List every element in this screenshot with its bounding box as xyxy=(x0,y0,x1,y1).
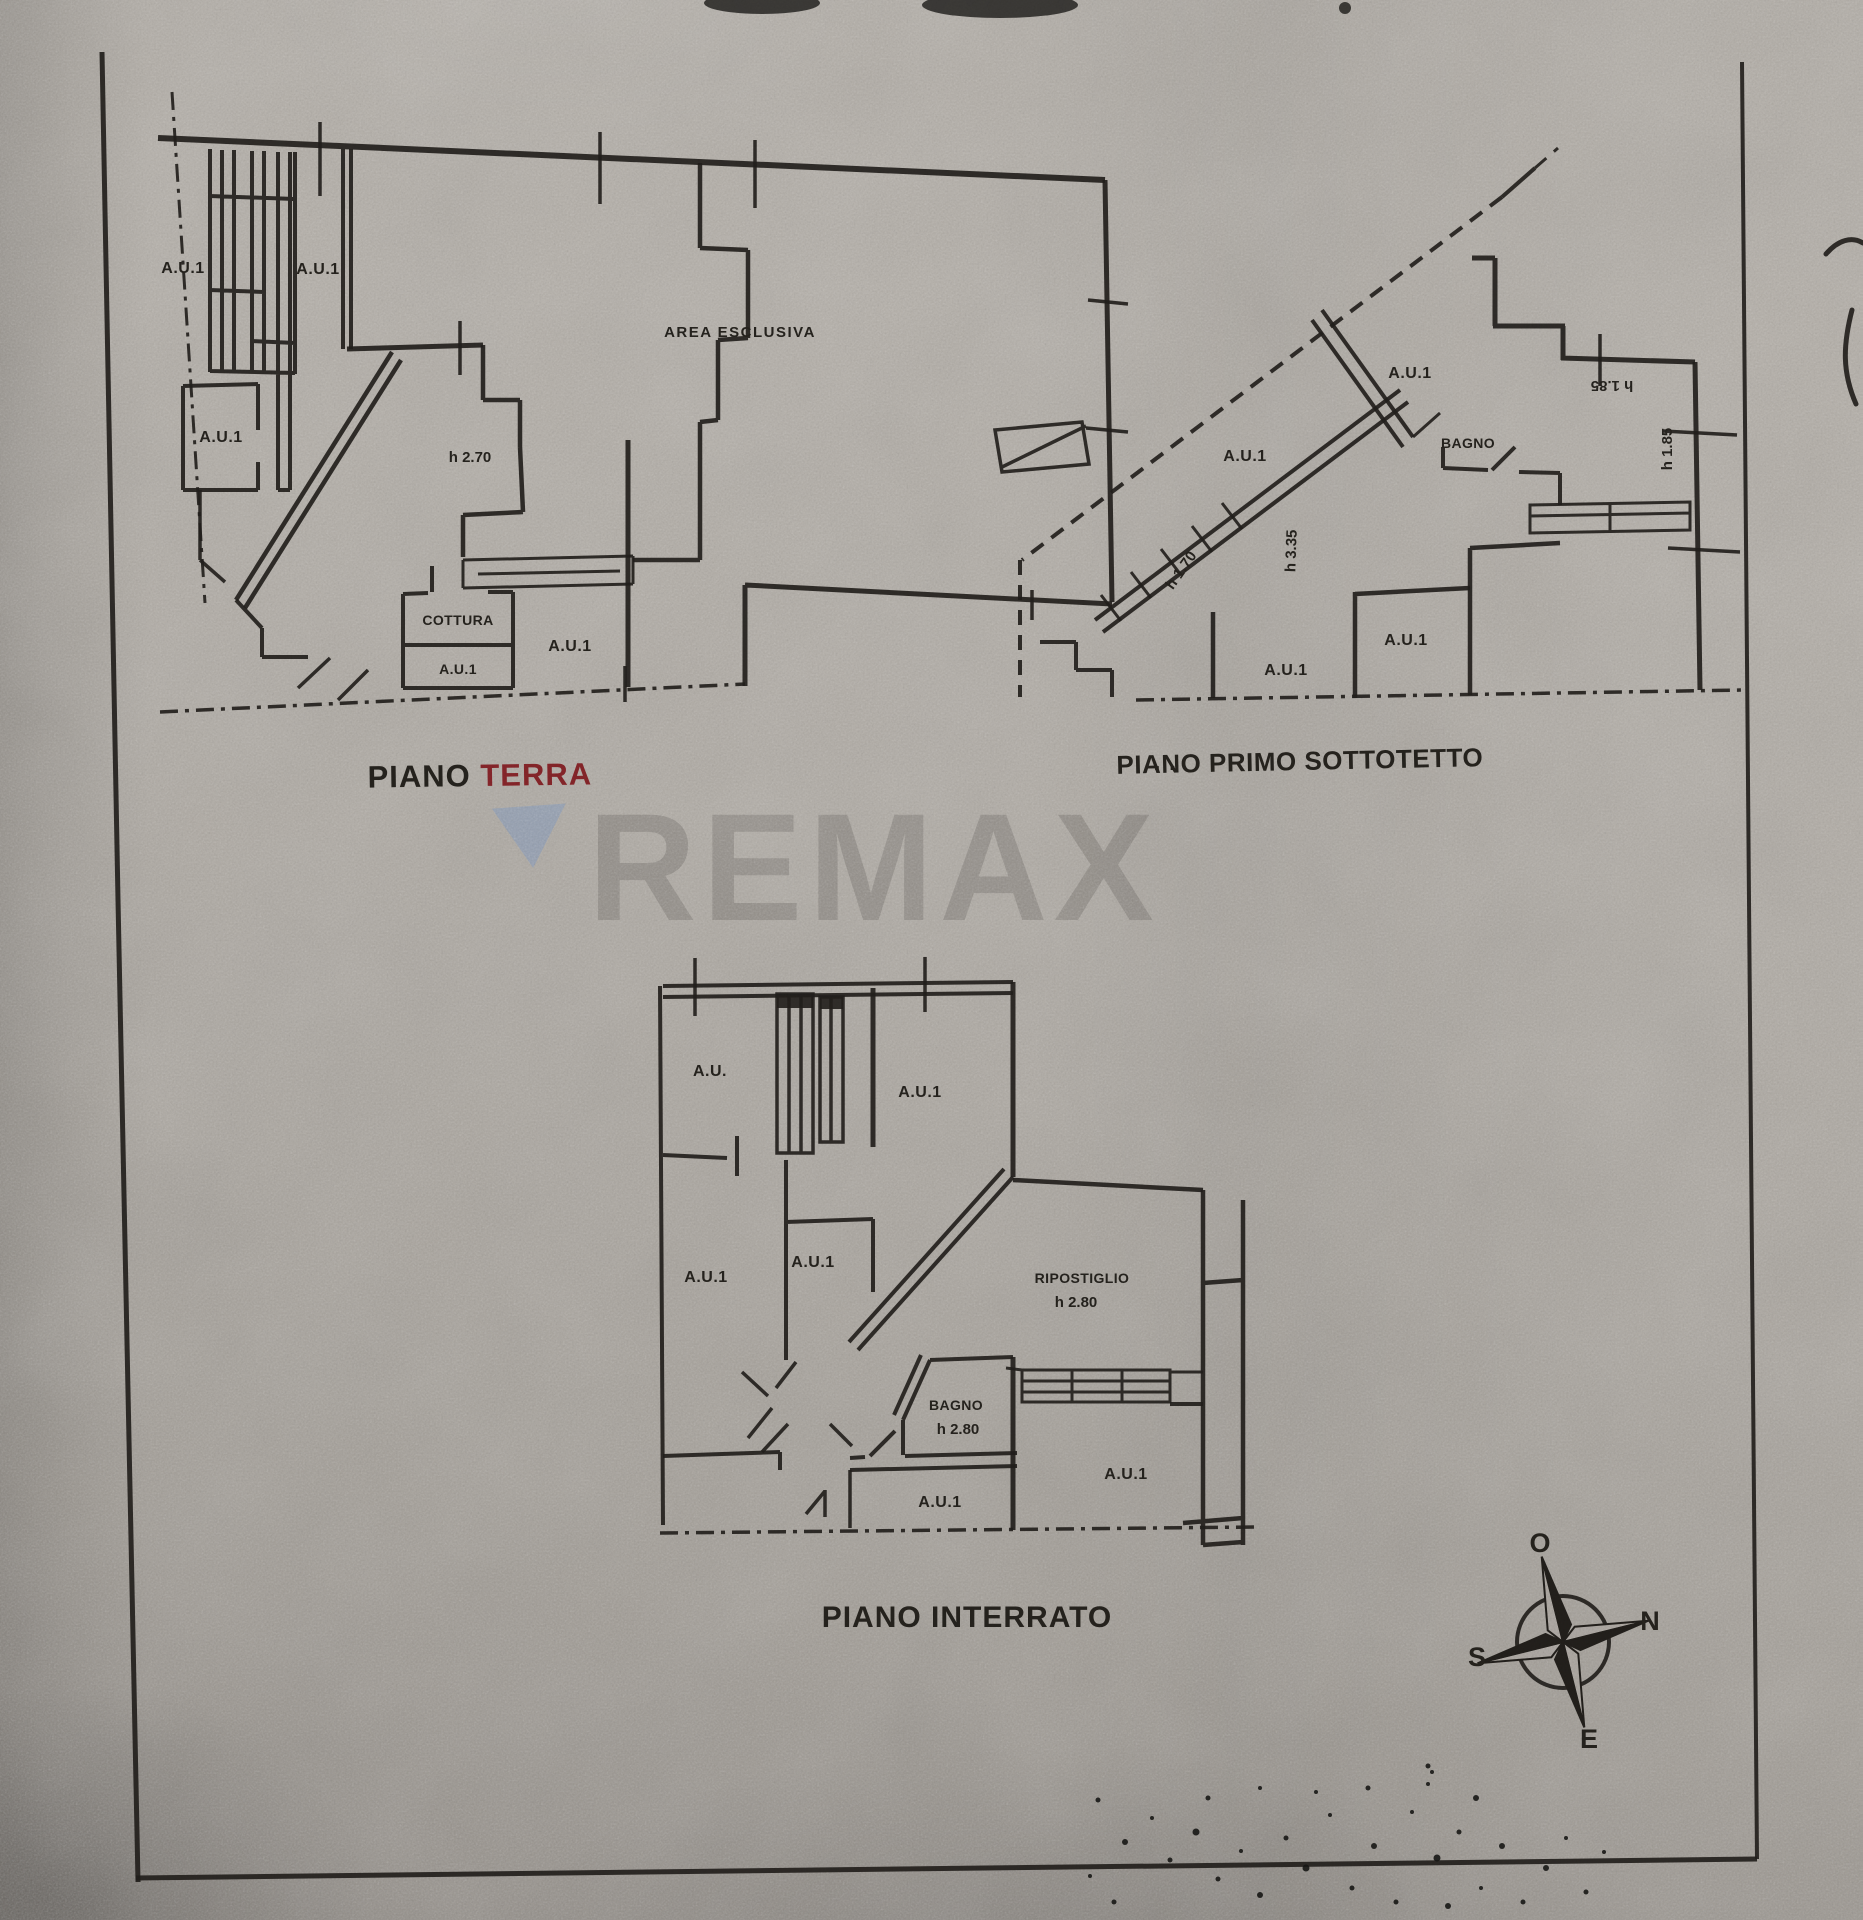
paper-grain-texture xyxy=(0,0,1863,1920)
floor-plan-drawing: A.U.1 A.U.1 A.U.1 h 2.70 AREA ESCLUSIVA … xyxy=(0,0,1863,1920)
scanned-floorplan-page: REMAX xyxy=(0,0,1863,1920)
